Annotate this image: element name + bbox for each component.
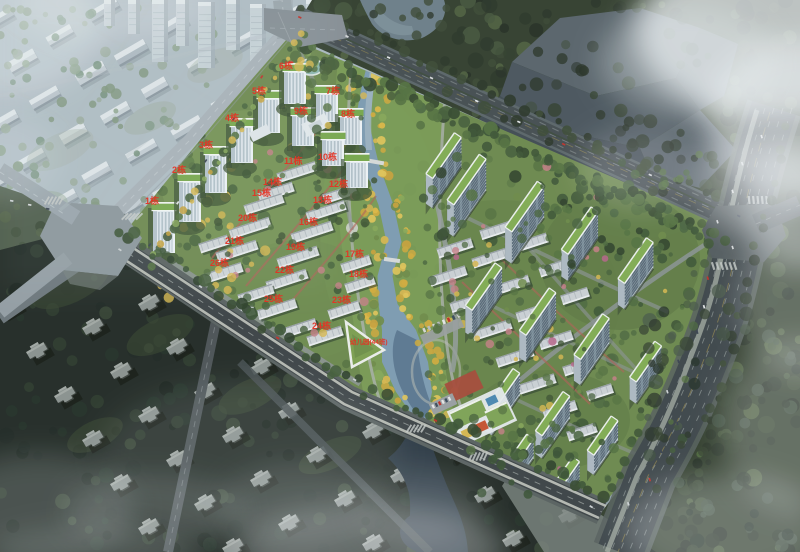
svg-text:13栋: 13栋 (313, 194, 332, 205)
svg-text:5栋: 5栋 (252, 85, 266, 96)
svg-text:幼儿园(44班): 幼儿园(44班) (350, 337, 388, 346)
svg-text:9栋: 9栋 (294, 105, 308, 116)
svg-text:17栋: 17栋 (345, 248, 364, 259)
svg-text:10栋: 10栋 (318, 151, 337, 162)
svg-text:21栋: 21栋 (225, 235, 244, 246)
svg-text:26栋: 26栋 (210, 257, 229, 268)
svg-text:4栋: 4栋 (225, 112, 239, 123)
svg-text:15栋: 15栋 (252, 187, 271, 198)
svg-text:1栋: 1栋 (145, 195, 159, 206)
svg-text:6栋: 6栋 (279, 60, 293, 71)
svg-text:7栋: 7栋 (326, 85, 340, 96)
svg-text:8栋: 8栋 (341, 108, 355, 119)
svg-text:20栋: 20栋 (238, 212, 257, 223)
svg-text:3栋: 3栋 (199, 139, 213, 150)
svg-text:2栋: 2栋 (172, 164, 186, 175)
svg-text:16栋: 16栋 (299, 216, 318, 227)
svg-text:18栋: 18栋 (349, 268, 368, 279)
svg-text:19栋: 19栋 (286, 241, 305, 252)
svg-text:22栋: 22栋 (275, 264, 294, 275)
svg-text:14栋: 14栋 (263, 176, 282, 187)
svg-text:25栋: 25栋 (264, 293, 283, 304)
svg-text:12栋: 12栋 (329, 178, 348, 189)
svg-text:11栋: 11栋 (284, 155, 303, 166)
svg-text:24栋: 24栋 (312, 320, 331, 331)
svg-text:23栋: 23栋 (332, 294, 351, 305)
